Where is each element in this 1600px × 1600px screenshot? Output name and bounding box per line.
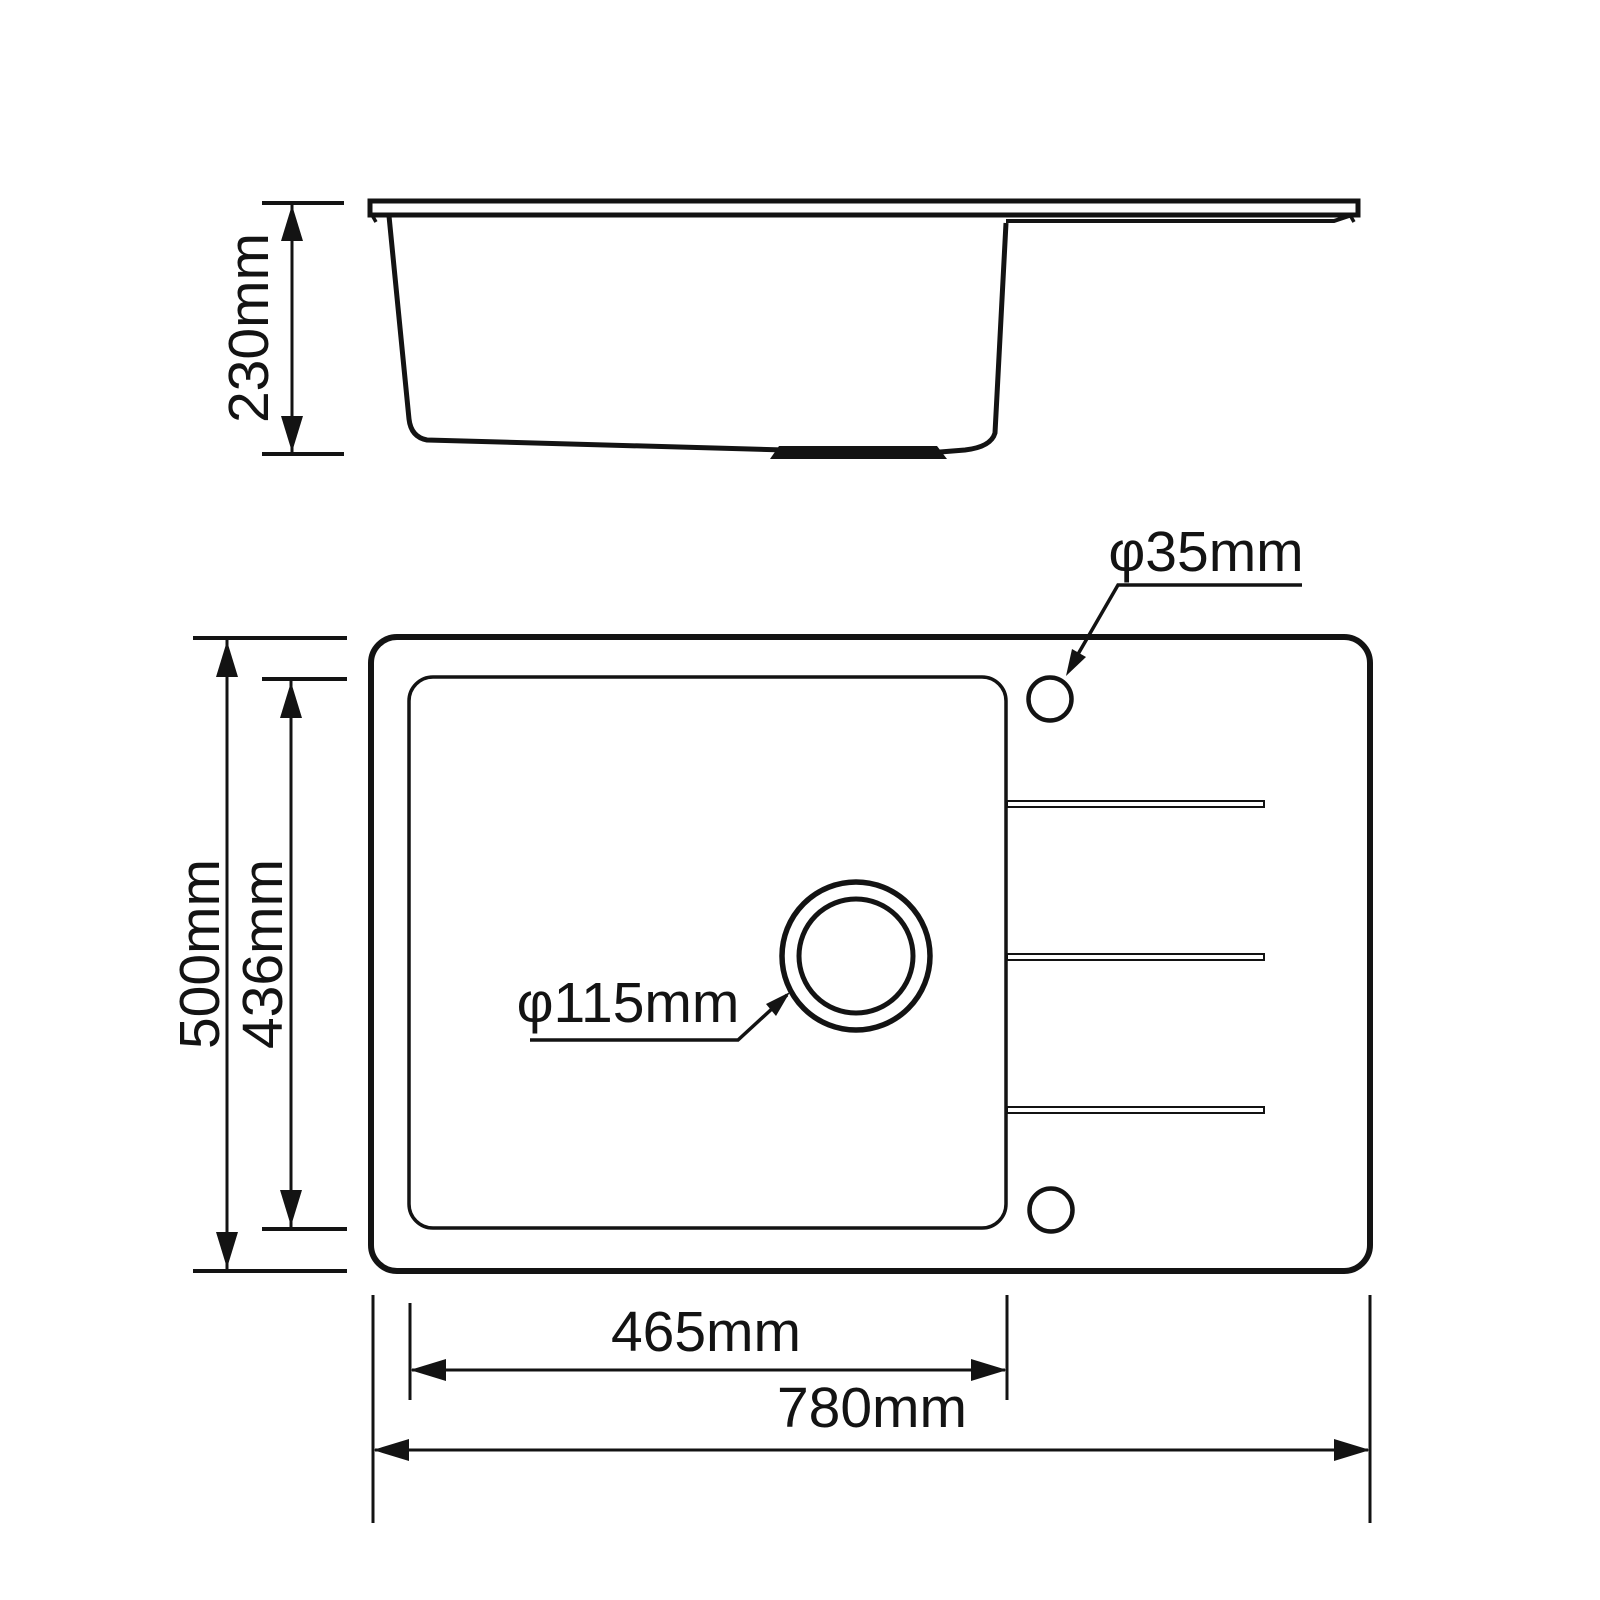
- dim-bowl-width-label: 436mm: [231, 859, 295, 1049]
- leader-faucet-hole: φ35mm: [1066, 520, 1304, 676]
- drain-hole-inner: [799, 899, 913, 1013]
- drain-hole-outer: [782, 882, 930, 1030]
- dim-bowl-length-arrow-right: [971, 1359, 1007, 1381]
- dim-depth-label: 230mm: [217, 233, 281, 423]
- dim-depth-arrow-up: [281, 205, 303, 241]
- top-view: [371, 637, 1370, 1271]
- dim-bowl-width: 436mm: [231, 679, 347, 1229]
- side-view-drain-stub: [770, 446, 947, 459]
- faucet-hole-bottom: [1030, 1189, 1073, 1232]
- leader-faucet-hole-label: φ35mm: [1108, 520, 1303, 584]
- dim-bowl-width-arrow-up: [280, 682, 302, 718]
- side-view-rim: [370, 201, 1358, 215]
- bowl-outline: [409, 677, 1006, 1228]
- faucet-hole-top: [1029, 678, 1072, 721]
- leader-drain-label: φ115mm: [517, 971, 740, 1035]
- dim-overall-width-arrow-down: [216, 1232, 238, 1268]
- dim-overall-length-arrow-right: [1334, 1439, 1370, 1461]
- dim-overall-length: 780mm: [373, 1295, 1370, 1523]
- drainboard-groove: [1007, 801, 1264, 807]
- dim-overall-length-label: 780mm: [777, 1376, 967, 1440]
- drainboard-groove: [1007, 954, 1264, 960]
- dim-depth-arrow-down: [281, 416, 303, 452]
- side-view: [370, 201, 1358, 459]
- drainboard-groove: [1007, 1107, 1264, 1113]
- drawing-page: 230mm 500mm 436mm 465mm: [0, 0, 1600, 1600]
- side-view-bowl-outline: [389, 216, 1006, 452]
- leader-faucet-hole-line: [1070, 585, 1302, 668]
- dim-bowl-width-arrow-down: [280, 1190, 302, 1226]
- leader-faucet-hole-arrow: [1066, 649, 1086, 676]
- dim-overall-width-label: 500mm: [168, 859, 232, 1049]
- dim-bowl-length-arrow-left: [410, 1359, 446, 1381]
- dim-depth: 230mm: [217, 203, 344, 454]
- dim-overall-length-arrow-left: [373, 1439, 409, 1461]
- sink-technical-drawing: 230mm 500mm 436mm 465mm: [0, 0, 1600, 1600]
- leader-drain: φ115mm: [517, 971, 790, 1040]
- dim-bowl-length-label: 465mm: [611, 1300, 801, 1364]
- dim-overall-width-arrow-up: [216, 641, 238, 677]
